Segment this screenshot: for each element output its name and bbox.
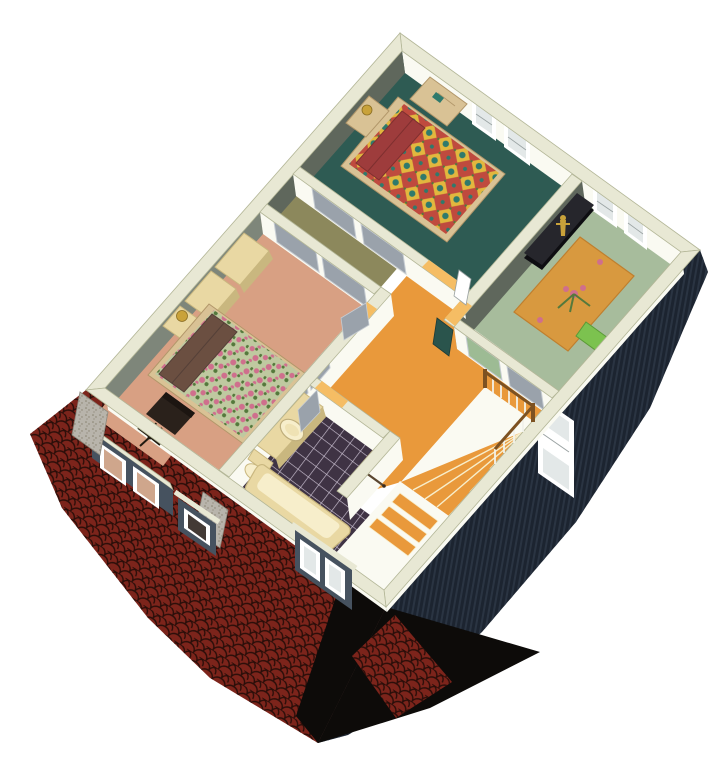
newel-post-2 [531, 403, 535, 422]
lamp-ball-teal [362, 105, 372, 115]
lamp-ball-master [177, 311, 188, 322]
newel-post-1 [483, 369, 487, 388]
isometric-house-svg [0, 0, 720, 763]
floor-plan-rendering [0, 0, 720, 763]
